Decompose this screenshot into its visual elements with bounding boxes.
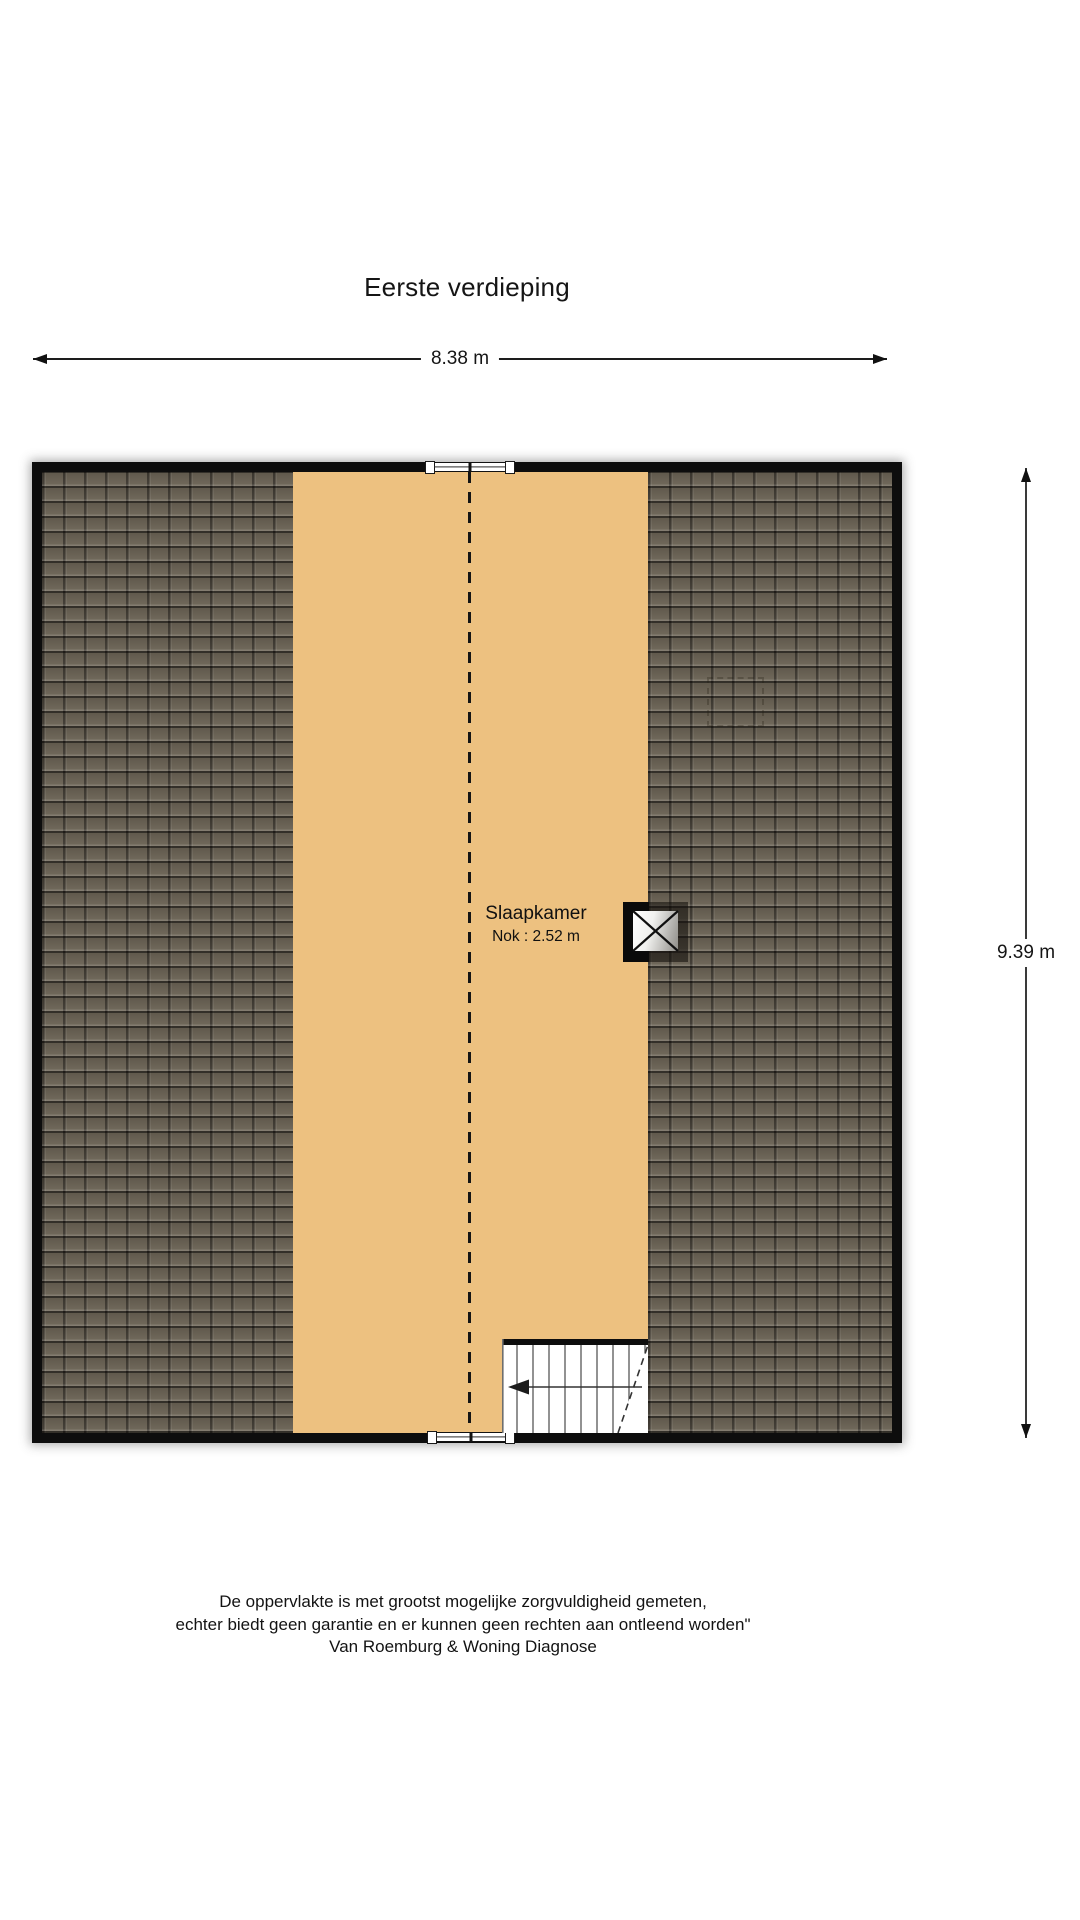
roof-window [623, 902, 688, 962]
page-title: Eerste verdieping [0, 272, 934, 303]
window-top [432, 462, 508, 472]
arrow-left-icon [33, 354, 47, 364]
room-name-label: Slaapkamer [416, 903, 656, 925]
staircase-drawing [502, 1339, 648, 1433]
floorplan-page: Eerste verdieping 8.38 m 9.39 m Slaapkam… [0, 0, 1080, 1920]
disclaimer-line-3: Van Roemburg & Woning Diagnose [0, 1636, 926, 1659]
arrow-down-icon [1021, 1424, 1031, 1438]
height-dimension-label: 9.39 m [990, 939, 1062, 967]
width-dimension: 8.38 m [33, 351, 887, 367]
width-dimension-label: 8.38 m [421, 348, 499, 370]
stair-top-edge [502, 1339, 648, 1345]
roof-window-cross-icon [623, 902, 688, 962]
height-dimension: 9.39 m [1018, 468, 1034, 1438]
staircase [502, 1339, 648, 1433]
stair-left-edge [502, 1339, 504, 1433]
arrow-up-icon [1021, 468, 1031, 482]
room-label: Slaapkamer Nok : 2.52 m [416, 903, 656, 946]
window-bottom [434, 1432, 508, 1442]
window-frame-cap [505, 461, 515, 474]
ridge-line [468, 472, 471, 1433]
disclaimer-line-1: De oppervlakte is met grootst mogelijke … [0, 1591, 926, 1614]
arrow-right-icon [873, 354, 887, 364]
floorplan: Slaapkamer Nok : 2.52 m [32, 462, 902, 1443]
disclaimer: De oppervlakte is met grootst mogelijke … [0, 1591, 926, 1659]
roof-dashed-outline [707, 677, 764, 727]
window-mullion [469, 462, 472, 472]
room-ridge-height-label: Nok : 2.52 m [416, 928, 656, 946]
roof-area-left [42, 472, 293, 1433]
window-mullion [470, 1432, 473, 1442]
disclaimer-line-2: echter biedt geen garantie en er kunnen … [0, 1614, 926, 1637]
